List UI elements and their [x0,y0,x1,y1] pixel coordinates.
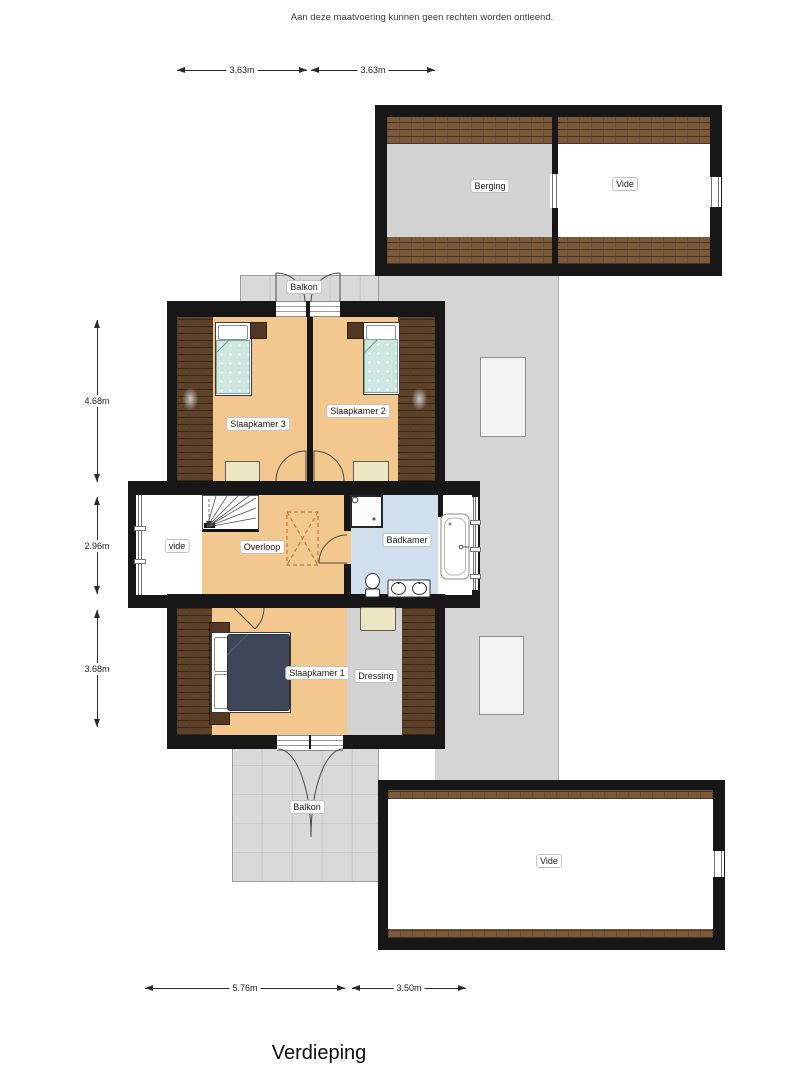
arrow-right-icon [299,67,307,73]
arrow-left-icon [311,67,319,73]
page-title: Verdieping [272,1042,367,1065]
arrow-left-icon [177,67,185,73]
dim-label: 3.50m [393,983,424,993]
room-label-vide-top: Vide [612,177,638,191]
arrow-left-icon [352,985,360,991]
room-label-overloop: Overloop [240,540,285,554]
dim-label: 3.63m [226,65,257,75]
dim-left-2: 2.96m [97,497,98,594]
dim-label: 3.68m [82,663,111,675]
dim-bottom-1: 5.76m [145,988,345,989]
room-label-vide-mid: vide [165,539,190,553]
arrow-left-icon [145,985,153,991]
room-label-badkamer: Badkamer [382,533,431,547]
dim-left-3: 3.68m [97,610,98,727]
dim-label: 2.96m [82,540,111,552]
dim-left-1: 4.68m [97,320,98,482]
room-label-vide-bottom: Vide [536,854,562,868]
room-label-berging: Berging [470,179,509,193]
room-label-balkon-bottom: Balkon [289,800,325,814]
floor-plan: Berging Vide Balkon Slaapkamer 3 Slaapka… [0,0,810,1080]
arrow-down-icon [94,586,100,594]
dim-bottom-2: 3.50m [352,988,466,989]
room-label-dressing: Dressing [354,669,398,683]
arrow-down-icon [94,474,100,482]
room-label-slaapkamer2: Slaapkamer 2 [326,404,390,418]
room-label-slaapkamer1: Slaapkamer 1 [285,666,349,680]
arrow-up-icon [94,497,100,505]
arrow-up-icon [94,320,100,328]
dim-label: 4.68m [82,395,111,407]
arrow-right-icon [427,67,435,73]
arrow-down-icon [94,719,100,727]
room-label-slaapkamer3: Slaapkamer 3 [226,417,290,431]
dim-label: 3.63m [357,65,388,75]
dim-top-2: 3.63m [311,70,435,71]
arrow-right-icon [458,985,466,991]
arrow-right-icon [337,985,345,991]
arrow-up-icon [94,610,100,618]
dim-top-1: 3.63m [177,70,307,71]
dim-label: 5.76m [229,983,260,993]
room-label-balkon-top: Balkon [286,280,322,294]
disclaimer-text: Aan deze maatvoering kunnen geen rechten… [291,12,554,23]
